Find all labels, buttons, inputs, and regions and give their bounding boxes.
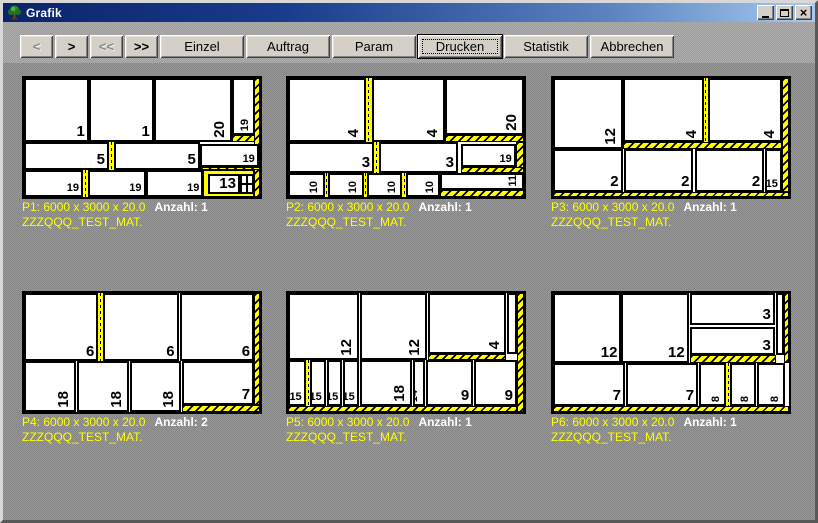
toolbar: <><<>>EinzelAuftragParamDruckenStatistik… xyxy=(3,22,815,63)
waste-hatch xyxy=(440,190,524,197)
piece-label: 10 xyxy=(425,181,437,195)
piece-label: 15 xyxy=(289,392,301,404)
piece-12: 12 xyxy=(288,293,359,360)
piece-label: 15 xyxy=(310,392,321,404)
piece-label: 20 xyxy=(212,121,228,140)
piece-label: 15 xyxy=(766,179,778,191)
panel-info-text: P5: 6000 x 3000 x 20.0 xyxy=(286,415,409,429)
piece-label: 5 xyxy=(97,152,105,168)
piece-label: 10 xyxy=(348,181,360,195)
panel-info-text: P4: 6000 x 3000 x 20.0 xyxy=(22,415,145,429)
abbrechen-button[interactable]: Abbrechen xyxy=(590,35,674,58)
piece-9: 9 xyxy=(474,360,516,406)
panel-count-text: Anzahl: 2 xyxy=(154,415,207,429)
maximize-icon xyxy=(780,9,789,17)
piece-label: 11 xyxy=(508,175,520,189)
piece-15: 15 xyxy=(327,360,342,406)
piece-18: 18 xyxy=(24,361,76,412)
piece-19: 19 xyxy=(88,170,146,197)
piece-label: 12 xyxy=(407,339,423,358)
piece-4: 4 xyxy=(708,78,782,142)
waste-hatch xyxy=(182,405,260,412)
piece-label: 15 xyxy=(327,392,338,404)
last-button[interactable]: >> xyxy=(125,35,158,58)
piece-label: 6 xyxy=(86,344,94,360)
piece-20: 20 xyxy=(154,78,232,142)
piece-label: 8 xyxy=(711,396,723,404)
piece-7: 7 xyxy=(553,363,625,406)
piece-10: 10 xyxy=(406,173,440,197)
piece xyxy=(507,293,516,354)
waste-hatch xyxy=(553,406,789,412)
piece-19: 19 xyxy=(24,170,83,197)
piece-2: 2 xyxy=(624,149,694,192)
piece-19: 19 xyxy=(461,144,515,167)
piece-18: 18 xyxy=(360,360,412,406)
panel-P1: 112019551919191913P1: 6000 x 3000 x 20.0… xyxy=(22,76,268,229)
piece-4: 4 xyxy=(288,78,366,142)
piece-14: 14 xyxy=(413,360,425,406)
piece-20: 20 xyxy=(445,78,524,135)
panel-info-text: P3: 6000 x 3000 x 20.0 xyxy=(551,200,674,214)
piece-8: 8 xyxy=(699,363,726,406)
piece-10: 10 xyxy=(328,173,363,197)
piece-13: 13 xyxy=(208,174,240,194)
piece-label: 18 xyxy=(392,385,408,404)
piece-label: 2 xyxy=(610,174,618,190)
piece-2: 2 xyxy=(553,149,623,192)
piece-label: 2 xyxy=(681,174,689,190)
panel-material-text: ZZZQQQ_TEST_MAT. xyxy=(286,215,406,229)
panel-material-text: ZZZQQQ_TEST_MAT. xyxy=(22,215,142,229)
piece-15: 15 xyxy=(765,149,782,192)
piece-label: 18 xyxy=(56,391,72,410)
titlebar[interactable]: Grafik × xyxy=(3,3,815,22)
prev-button: < xyxy=(20,35,53,58)
panel-count-text: Anzahl: 1 xyxy=(154,200,207,214)
first-button: << xyxy=(90,35,123,58)
app-window: Grafik × <><<>>EinzelAuftragParamDrucken… xyxy=(0,0,818,523)
waste-hatch xyxy=(782,78,789,192)
piece-label: 12 xyxy=(603,128,619,147)
piece-label: 9 xyxy=(505,388,513,404)
piece-label: 6 xyxy=(166,344,174,360)
piece-label: 1 xyxy=(141,124,149,140)
maximize-button[interactable] xyxy=(776,5,793,20)
piece xyxy=(776,293,784,355)
piece-label: 7 xyxy=(613,388,621,404)
piece-10: 10 xyxy=(288,173,325,197)
piece-label: 9 xyxy=(461,388,469,404)
piece-3: 3 xyxy=(379,142,458,173)
piece-label: 12 xyxy=(339,339,355,358)
piece-label: 4 xyxy=(346,129,362,139)
piece-5: 5 xyxy=(114,142,200,171)
panel-material-text: ZZZQQQ_TEST_MAT. xyxy=(286,430,406,444)
piece-label: 12 xyxy=(668,345,685,361)
drucken-button[interactable]: Drucken xyxy=(418,35,502,58)
piece-2: 2 xyxy=(695,149,765,192)
cutting-board-P4[interactable]: 6661818187 xyxy=(22,291,262,414)
piece-1: 1 xyxy=(89,78,154,142)
piece-label: 1 xyxy=(77,124,85,140)
piece-19: 19 xyxy=(200,144,259,167)
piece-7: 7 xyxy=(182,361,254,404)
panel-P3: 124422215P3: 6000 x 3000 x 20.0Anzahl: 1… xyxy=(551,76,797,229)
piece-label: 19 xyxy=(67,183,79,195)
panel-count-text: Anzahl: 1 xyxy=(418,200,471,214)
piece-12: 12 xyxy=(621,293,688,363)
piece-19: 19 xyxy=(232,78,256,135)
piece-9: 9 xyxy=(426,360,473,406)
piece-label: 14 xyxy=(413,390,421,404)
piece-label: 5 xyxy=(187,152,195,168)
piece-18: 18 xyxy=(77,361,129,412)
piece-15: 15 xyxy=(288,360,306,406)
panel-info-text: P1: 6000 x 3000 x 20.0 xyxy=(22,200,145,214)
waste-hatch xyxy=(784,293,789,363)
piece-3: 3 xyxy=(690,327,775,356)
piece-label: 19 xyxy=(187,183,199,195)
auftrag-button[interactable]: Auftrag xyxy=(246,35,330,58)
piece-12: 12 xyxy=(553,293,621,363)
cutting-board-P5[interactable]: 1212415151515181499 xyxy=(286,291,526,414)
piece-label: 3 xyxy=(762,338,770,354)
panel-material-text: ZZZQQQ_TEST_MAT. xyxy=(22,430,142,444)
piece-6: 6 xyxy=(103,293,179,361)
piece-8: 8 xyxy=(757,363,785,406)
piece-label: 12 xyxy=(601,345,618,361)
piece-label: 3 xyxy=(362,155,370,171)
piece-label: 18 xyxy=(161,391,177,410)
piece-label: 8 xyxy=(740,396,752,404)
cutting-board-P1[interactable]: 112019551919191913 xyxy=(22,76,262,199)
piece xyxy=(240,174,254,194)
waste-hatch xyxy=(623,142,782,149)
piece-12: 12 xyxy=(553,78,623,149)
piece-4: 4 xyxy=(623,78,704,142)
piece-15: 15 xyxy=(310,360,325,406)
panel-count-text: Anzahl: 1 xyxy=(683,200,736,214)
panel-count-text: Anzahl: 1 xyxy=(683,415,736,429)
piece-label: 2 xyxy=(752,174,760,190)
piece-19: 19 xyxy=(146,170,204,197)
client-area: 112019551919191913P1: 6000 x 3000 x 20.0… xyxy=(3,63,815,520)
piece-7: 7 xyxy=(626,363,698,406)
piece-12: 12 xyxy=(360,293,427,360)
piece-label: 13 xyxy=(219,176,236,192)
piece-11: 11 xyxy=(440,173,524,191)
piece-label: 18 xyxy=(109,391,125,410)
piece-label: 10 xyxy=(387,181,399,195)
minimize-icon xyxy=(762,16,769,18)
panel-material-text: ZZZQQQ_TEST_MAT. xyxy=(551,430,671,444)
panel-P2: 442033191010101011P2: 6000 x 3000 x 20.0… xyxy=(286,76,532,229)
piece-4: 4 xyxy=(428,293,506,354)
waste-hatch xyxy=(445,135,524,142)
piece-label: 6 xyxy=(242,344,250,360)
close-button[interactable]: × xyxy=(795,5,812,20)
cutting-board-P6[interactable]: 12123377888 xyxy=(551,291,791,414)
piece-label: 19 xyxy=(240,119,252,133)
cutting-board-P2[interactable]: 442033191010101011 xyxy=(286,76,526,199)
piece-4: 4 xyxy=(372,78,445,142)
piece-label: 20 xyxy=(504,114,520,133)
piece-5: 5 xyxy=(24,142,109,171)
piece-label: 7 xyxy=(686,388,694,404)
panel-P5: 1212415151515181499P5: 6000 x 3000 x 20.… xyxy=(286,291,532,444)
tree-icon xyxy=(7,5,22,20)
panel-info-text: P2: 6000 x 3000 x 20.0 xyxy=(286,200,409,214)
waste-hatch xyxy=(254,293,260,405)
piece-1: 1 xyxy=(24,78,89,142)
minimize-button[interactable] xyxy=(757,5,774,20)
piece-6: 6 xyxy=(24,293,98,361)
piece-label: 4 xyxy=(487,341,503,351)
next-button[interactable]: > xyxy=(55,35,88,58)
piece-8: 8 xyxy=(730,363,756,406)
panel-material-text: ZZZQQQ_TEST_MAT. xyxy=(551,215,671,229)
piece-15: 15 xyxy=(343,360,358,406)
piece-6: 6 xyxy=(180,293,254,361)
piece-label: 4 xyxy=(684,130,700,140)
piece-10: 10 xyxy=(367,173,402,197)
piece-3: 3 xyxy=(288,142,374,173)
panel-count-text: Anzahl: 1 xyxy=(418,415,471,429)
waste-hatch xyxy=(690,355,776,363)
piece-label: 19 xyxy=(499,154,511,166)
statistik-button[interactable]: Statistik xyxy=(504,35,588,58)
waste-hatch xyxy=(517,293,524,412)
param-button[interactable]: Param xyxy=(332,35,416,58)
waste-hatch xyxy=(288,406,517,412)
piece-label: 10 xyxy=(309,181,321,195)
piece-label: 4 xyxy=(425,129,441,139)
piece-label: 3 xyxy=(446,155,454,171)
piece-label: 15 xyxy=(343,392,354,404)
panel-P6: 12123377888P6: 6000 x 3000 x 20.0Anzahl:… xyxy=(551,291,797,444)
cutting-board-P3[interactable]: 124422215 xyxy=(551,76,791,199)
piece-label: 8 xyxy=(770,396,782,404)
piece-18: 18 xyxy=(130,361,181,412)
piece-label: 19 xyxy=(243,154,255,166)
panel-P4: 6661818187P4: 6000 x 3000 x 20.0Anzahl: … xyxy=(22,291,268,444)
panel-info-text: P6: 6000 x 3000 x 20.0 xyxy=(551,415,674,429)
piece-label: 4 xyxy=(762,130,778,140)
piece-label: 19 xyxy=(129,183,141,195)
piece-label: 7 xyxy=(242,387,250,403)
waste-hatch xyxy=(553,192,789,197)
einzel-button[interactable]: Einzel xyxy=(160,35,244,58)
piece-label: 3 xyxy=(762,307,770,323)
window-title: Grafik xyxy=(26,6,755,20)
piece-3: 3 xyxy=(690,293,775,325)
close-icon: × xyxy=(800,6,808,19)
waste-hatch xyxy=(232,135,256,142)
